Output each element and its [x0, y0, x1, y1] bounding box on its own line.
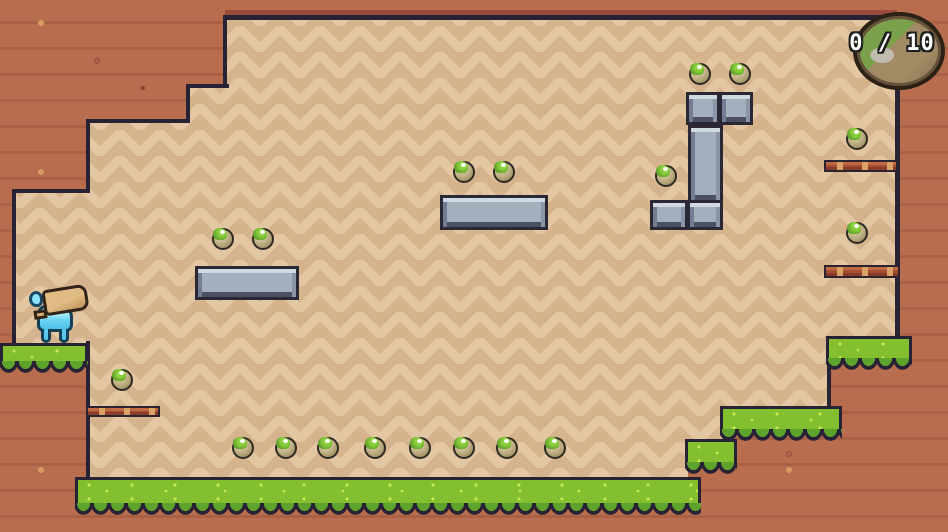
fruit-collectible: [655, 165, 677, 187]
fruit-collectible: [364, 437, 386, 459]
fruit-collectible: [544, 437, 566, 459]
game-viewport[interactable]: 0 / 10: [0, 0, 948, 532]
fruit-collectible: [252, 228, 274, 250]
grass-platform-bottom-main: [75, 477, 701, 515]
fruit-collectible: [493, 161, 515, 183]
steel-block-platform: [719, 92, 753, 125]
boundary-step-b-h: [86, 119, 190, 123]
fruit-collectible: [232, 437, 254, 459]
grass-platform-left-ledge: [0, 343, 88, 373]
wooden-bar-platform: [824, 160, 898, 172]
player-front-leg: [59, 329, 69, 343]
steel-block-platform: [688, 125, 723, 203]
fruit-collectible: [275, 437, 297, 459]
collectible-counter: 0 / 10: [836, 31, 948, 56]
steel-block-platform: [650, 200, 688, 230]
steel-block-platform: [686, 92, 720, 125]
grass-platform-step-mid: [720, 406, 842, 441]
boundary-step-b-v: [86, 119, 90, 193]
player-back-leg: [41, 329, 51, 343]
fruit-collectible: [317, 437, 339, 459]
fruit-collectible: [212, 228, 234, 250]
steel-block-platform: [687, 200, 723, 230]
player-character: [28, 286, 88, 343]
steel-block-platform: [195, 266, 299, 300]
grass-platform-right-shelf: [826, 336, 912, 370]
wooden-bar-platform: [824, 265, 900, 278]
steel-block-platform: [440, 195, 548, 230]
fruit-collectible: [111, 369, 133, 391]
fruit-collectible: [846, 128, 868, 150]
wooden-bar-platform: [86, 406, 160, 417]
player-sack: [41, 284, 90, 317]
boundary-top: [223, 15, 899, 20]
boundary-step-d-v: [223, 15, 227, 88]
fruit-collectible: [496, 437, 518, 459]
boundary-left-wall-upper: [12, 191, 16, 345]
fruit-collectible: [729, 63, 751, 85]
fruit-collectible: [409, 437, 431, 459]
boundary-step-a-h: [12, 189, 90, 193]
fruit-collectible: [689, 63, 711, 85]
fruit-collectible: [453, 437, 475, 459]
fruit-collectible: [453, 161, 475, 183]
grass-platform-step-small: [685, 439, 737, 474]
boundary-step-c-v: [186, 84, 190, 123]
fruit-collectible: [846, 222, 868, 244]
